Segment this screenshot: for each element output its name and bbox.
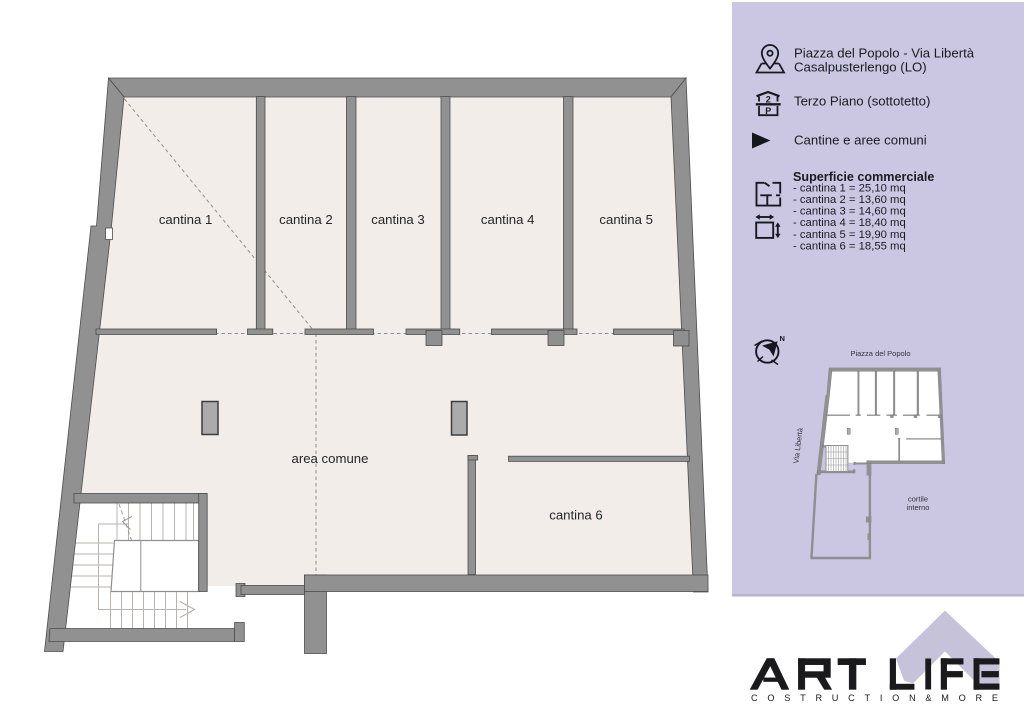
svg-text:- cantina 2 = 13,60 mq: - cantina 2 = 13,60 mq bbox=[793, 194, 906, 206]
svg-text:- cantina 6 = 18,55 mq: - cantina 6 = 18,55 mq bbox=[793, 240, 906, 252]
svg-text:Casalpusterlengo (LO): Casalpusterlengo (LO) bbox=[794, 60, 927, 75]
svg-text:N: N bbox=[780, 334, 785, 343]
svg-text:Piazza del Popolo: Piazza del Popolo bbox=[850, 349, 910, 358]
svg-text:Terzo Piano (sottotetto): Terzo Piano (sottotetto) bbox=[794, 94, 930, 109]
svg-text:- cantina 3 = 14,60 mq: - cantina 3 = 14,60 mq bbox=[793, 206, 906, 218]
svg-text:cantina 6: cantina 6 bbox=[549, 508, 603, 523]
svg-text:- cantina 5 = 19,90 mq: - cantina 5 = 19,90 mq bbox=[793, 229, 906, 241]
svg-text:Cantine e aree comuni: Cantine e aree comuni bbox=[794, 133, 927, 148]
svg-text:cantina 2: cantina 2 bbox=[279, 212, 333, 227]
svg-text:- cantina 1 = 25,10 mq: - cantina 1 = 25,10 mq bbox=[793, 182, 906, 194]
svg-text:P: P bbox=[765, 106, 771, 116]
svg-text:area comune: area comune bbox=[292, 451, 369, 466]
svg-text:interno: interno bbox=[907, 503, 930, 512]
svg-text:cantina 5: cantina 5 bbox=[599, 212, 653, 227]
svg-text:2: 2 bbox=[766, 94, 771, 104]
svg-text:cantina 3: cantina 3 bbox=[371, 212, 425, 227]
svg-text:cantina 4: cantina 4 bbox=[481, 212, 535, 227]
svg-text:- cantina 4 = 18,40 mq: - cantina 4 = 18,40 mq bbox=[793, 217, 906, 229]
svg-text:cantina 1: cantina 1 bbox=[159, 212, 213, 227]
svg-text:Piazza del Popolo - Via Libert: Piazza del Popolo - Via Libertà bbox=[794, 46, 975, 61]
